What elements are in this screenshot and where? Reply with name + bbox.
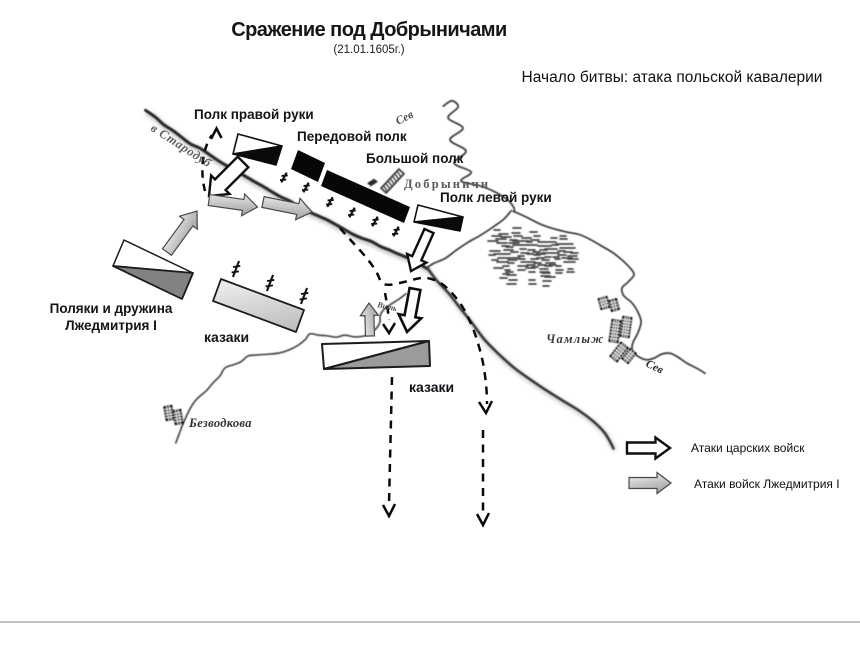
svg-text:Полк правой руки: Полк правой руки: [194, 107, 314, 122]
svg-text:казаки: казаки: [409, 379, 454, 395]
svg-text:Поляки и дружина: Поляки и дружина: [50, 301, 173, 316]
svg-text:Безводкова: Безводкова: [188, 416, 252, 430]
svg-text:Добрыничи: Добрыничи: [404, 177, 490, 191]
svg-text:(21.01.1605г.): (21.01.1605г.): [333, 44, 404, 56]
svg-text:Полк левой руки: Полк левой руки: [440, 190, 552, 205]
svg-text:Атаки войск Лжедмитрия I: Атаки войск Лжедмитрия I: [694, 477, 840, 491]
svg-text:Лжедмитрия I: Лжедмитрия I: [65, 318, 157, 333]
svg-text:Сев: Сев: [644, 358, 665, 377]
svg-text:в Стародуб: в Стародуб: [148, 121, 214, 171]
svg-text:Большой полк: Большой полк: [366, 151, 464, 166]
svg-text:Сражение под Добрыничами: Сражение под Добрыничами: [231, 19, 507, 41]
svg-text:Передовой полк: Передовой полк: [297, 129, 407, 144]
svg-text:Чамлыж: Чамлыж: [546, 332, 604, 346]
svg-text:казаки: казаки: [204, 329, 249, 345]
svg-text:Атаки царских войск: Атаки царских войск: [691, 441, 805, 455]
svg-text:Начало битвы: атака польской к: Начало битвы: атака польской кавалерии: [522, 69, 823, 86]
svg-text:Сев: Сев: [394, 109, 415, 128]
